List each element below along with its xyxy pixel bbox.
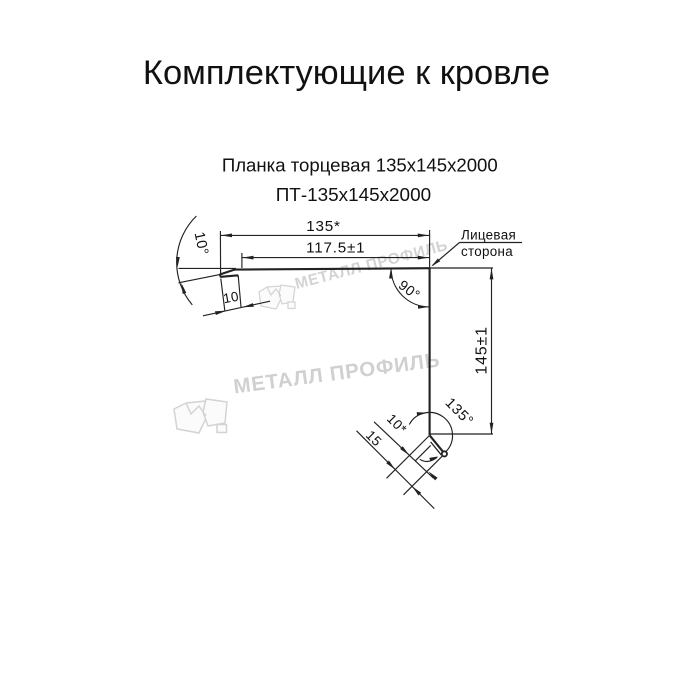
svg-text:Лицевая: Лицевая [461,228,516,243]
svg-text:135*: 135* [306,218,340,235]
svg-text:Комплектующие к кровле: Комплектующие к кровле [143,54,550,92]
svg-text:Планка торцевая 135х145х2000: Планка торцевая 135х145х2000 [222,155,498,176]
svg-text:117.5±1: 117.5±1 [306,239,365,256]
svg-text:сторона: сторона [461,244,513,259]
svg-text:10: 10 [222,289,240,307]
svg-text:145±1: 145±1 [473,326,490,374]
svg-text:ПТ-135х145х2000: ПТ-135х145х2000 [276,185,431,206]
